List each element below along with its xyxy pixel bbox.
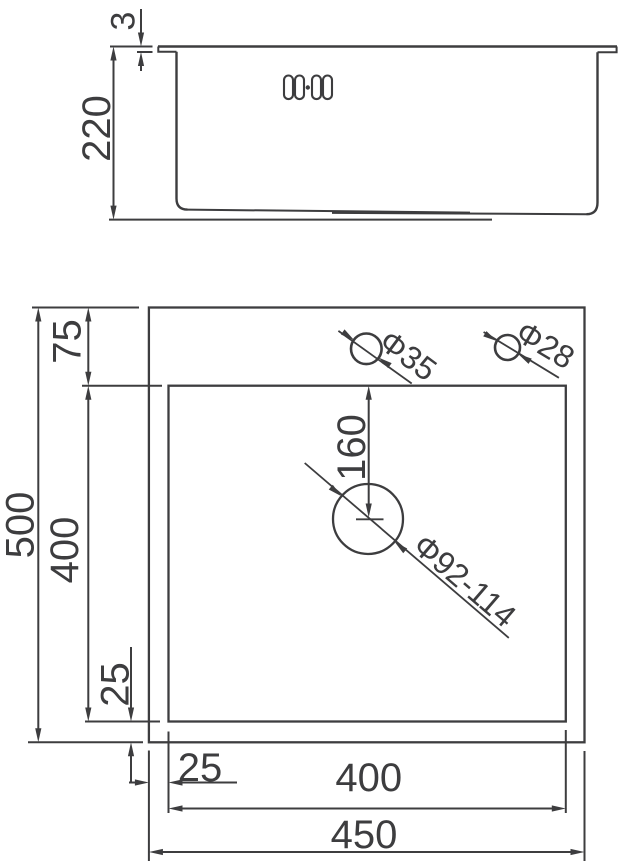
svg-text:400: 400 (43, 517, 87, 584)
svg-text:220: 220 (75, 95, 119, 162)
svg-text:Φ28: Φ28 (510, 314, 581, 376)
svg-text:450: 450 (331, 813, 398, 857)
svg-text:160: 160 (330, 414, 374, 481)
svg-text:75: 75 (46, 319, 90, 364)
svg-text:3: 3 (104, 12, 142, 31)
svg-text:500: 500 (0, 492, 43, 559)
svg-text:Φ92-114: Φ92-114 (406, 527, 523, 634)
svg-text:400: 400 (335, 756, 402, 800)
svg-text:Φ35: Φ35 (373, 323, 444, 388)
svg-text:25: 25 (178, 746, 223, 790)
svg-text:25: 25 (94, 662, 138, 707)
